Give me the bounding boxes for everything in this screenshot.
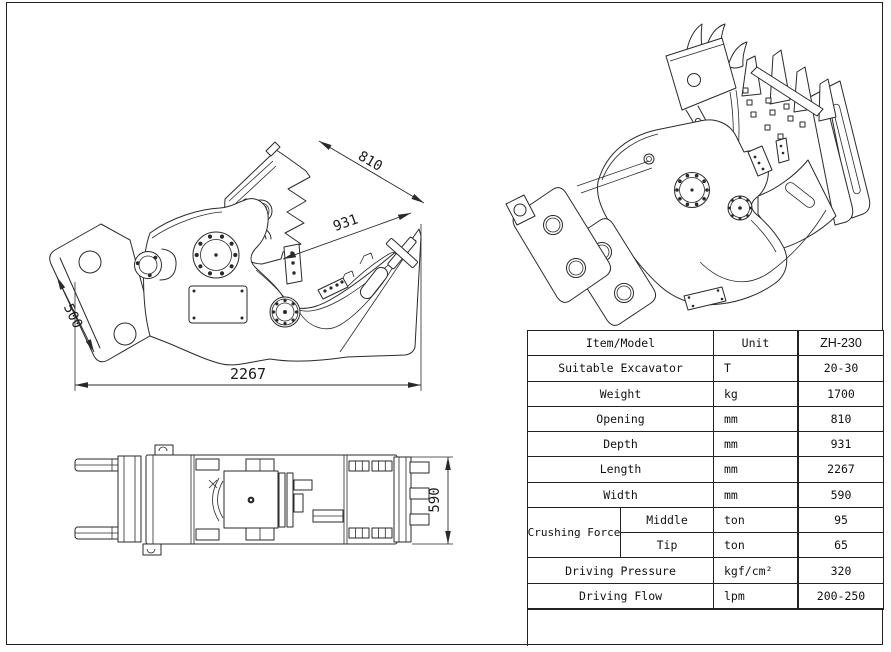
table-cell-unit: mm (714, 407, 797, 432)
drawing-sheet: 810 931 500 2267 (0, 0, 891, 652)
dim-length-label: 2267 (230, 365, 266, 383)
table-cell-value: 95 (797, 508, 883, 533)
table-cell-crushing-middle: Middle (621, 508, 714, 533)
table-cell-value: 810 (797, 407, 883, 432)
table-cell-item: Suitable Excavator (528, 356, 714, 381)
side-view-cover-plate (189, 286, 247, 323)
table-header-unit: Unit (714, 331, 797, 356)
table-empty-row (527, 610, 884, 646)
table-cell-value: 65 (797, 533, 883, 558)
table-cell-unit: mm (714, 483, 797, 508)
table-cell-value: 2267 (797, 457, 883, 482)
top-view-drawing: 590 (75, 445, 453, 555)
table-cell-unit: lpm (714, 584, 797, 609)
table-cell-item: Driving Flow (528, 584, 714, 609)
dimension-opening: 810 (319, 141, 424, 203)
dim-width-label: 590 (427, 487, 443, 512)
table-cell-item: Driving Pressure (528, 558, 714, 583)
table-cell-value: 20-30 (797, 356, 883, 381)
side-view-mount-bracket (50, 224, 155, 362)
table-cell-crushing-tip: Tip (621, 533, 714, 558)
table-cell-item: Weight (528, 382, 714, 407)
table-cell-item: Opening (528, 407, 714, 432)
table-cell-value: 590 (797, 483, 883, 508)
top-view-body (143, 445, 429, 555)
table-cell-unit: kg (714, 382, 797, 407)
table-header-item-model: Item/Model (528, 331, 714, 356)
iso-view-drawing (506, 24, 870, 325)
dim-depth-label: 931 (331, 211, 360, 235)
spec-table: Item/Model Unit ZH-230 Suitable Excavato… (527, 330, 884, 610)
table-cell-item: Length (528, 457, 714, 482)
dimension-depth: 931 (283, 211, 411, 259)
top-view-fork (75, 456, 141, 542)
table-cell-value: 1700 (797, 382, 883, 407)
table-cell-unit: ton (714, 533, 797, 558)
table-cell-value: 931 (797, 432, 883, 457)
table-cell-item: Width (528, 483, 714, 508)
side-view-flange (193, 232, 239, 278)
side-view-link-plates (284, 244, 348, 299)
iso-bearing (728, 196, 752, 220)
table-cell-unit: mm (714, 432, 797, 457)
table-cell-item: Depth (528, 432, 714, 457)
table-cell-crushing-force: Crushing Force (528, 508, 621, 559)
table-cell-unit: ton (714, 508, 797, 533)
table-header-model: ZH-230 (797, 331, 883, 356)
table-cell-unit: mm (714, 457, 797, 482)
table-cell-value: 320 (797, 558, 883, 583)
table-cell-unit: T (714, 356, 797, 381)
table-cell-value: 200-250 (797, 584, 883, 609)
side-view-drawing: 810 931 500 2267 (50, 141, 424, 391)
side-view-bearing (270, 297, 300, 327)
table-cell-unit: kgf/cm² (714, 558, 797, 583)
iso-flange (675, 173, 710, 208)
